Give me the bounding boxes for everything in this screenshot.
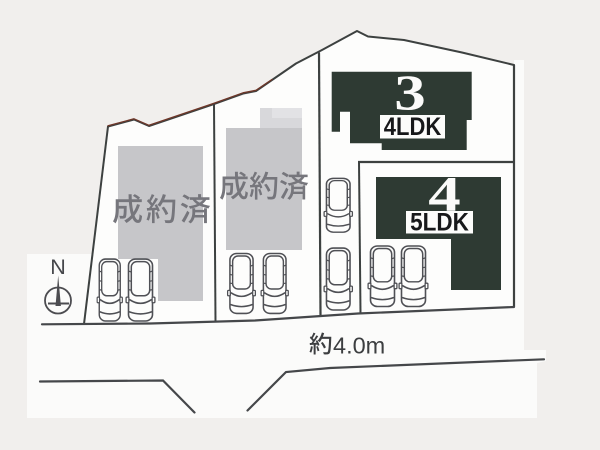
svg-text:4.0m: 4.0m [333,333,385,359]
svg-text:4LDK: 4LDK [384,113,441,141]
svg-text:5LDK: 5LDK [410,208,469,236]
svg-text:N: N [50,255,66,279]
